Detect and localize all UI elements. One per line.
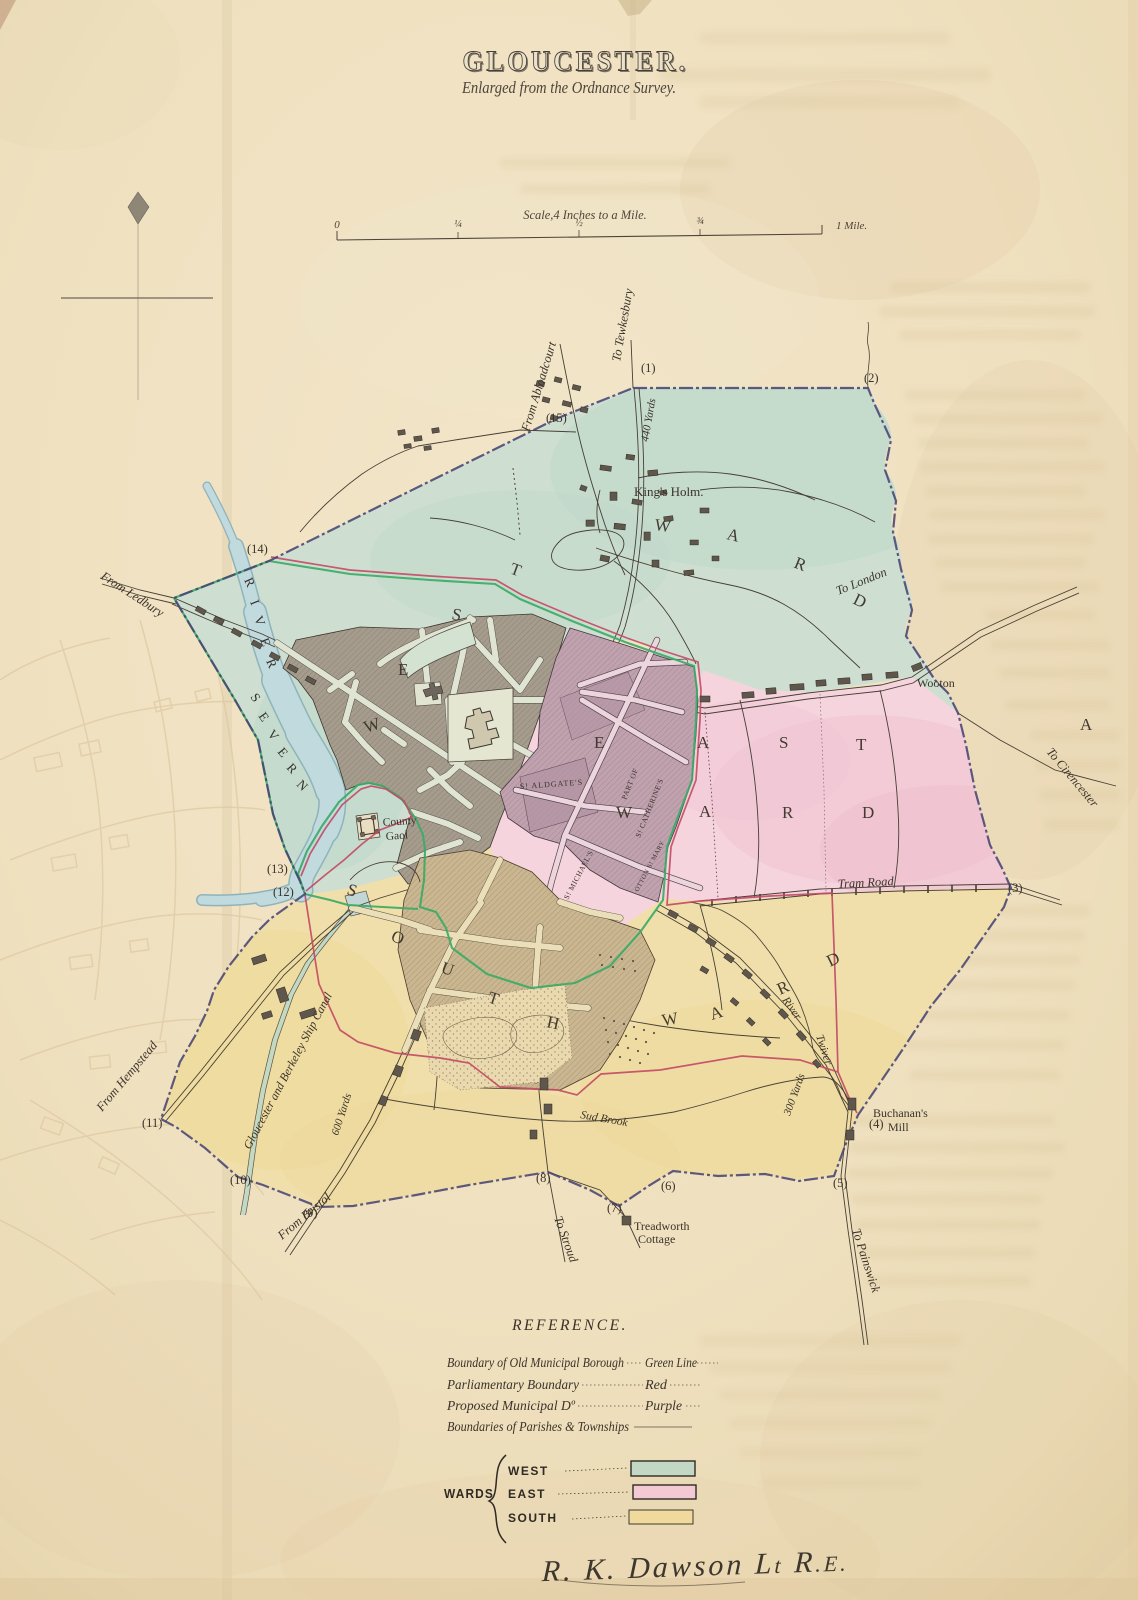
- svg-text:King's Holm.: King's Holm.: [634, 484, 704, 499]
- svg-text:Green Line: Green Line: [645, 1356, 697, 1371]
- svg-text:D: D: [862, 803, 874, 822]
- svg-text:(1): (1): [641, 361, 656, 375]
- svg-text:E: E: [398, 660, 408, 679]
- svg-text:(14): (14): [247, 542, 268, 556]
- svg-text:(7): (7): [607, 1201, 622, 1215]
- svg-text:(2): (2): [864, 371, 879, 385]
- svg-text:Red: Red: [644, 1378, 668, 1393]
- svg-text:E: E: [594, 733, 604, 752]
- svg-text:(8): (8): [536, 1171, 551, 1185]
- svg-text:S: S: [779, 733, 788, 752]
- svg-text:Proposed Municipal Dº: Proposed Municipal Dº: [446, 1399, 576, 1414]
- svg-text:(15): (15): [546, 411, 567, 425]
- svg-text:WEST: WEST: [508, 1464, 549, 1478]
- svg-text:EAST: EAST: [508, 1487, 546, 1501]
- svg-text:(6): (6): [661, 1179, 676, 1193]
- svg-text:Boundaries of Parishes & Towns: Boundaries of Parishes & Townships: [447, 1420, 629, 1435]
- svg-text:Wooton: Wooton: [917, 676, 955, 690]
- svg-text:A: A: [697, 733, 710, 752]
- svg-text:Gaol: Gaol: [385, 829, 408, 843]
- svg-text:(9): (9): [303, 1206, 318, 1220]
- svg-text:(4): (4): [869, 1117, 884, 1131]
- svg-text:W: W: [616, 803, 633, 822]
- svg-text:Parliamentary Boundary: Parliamentary Boundary: [446, 1378, 580, 1393]
- svg-text:0: 0: [334, 219, 340, 231]
- svg-text:A: A: [1080, 715, 1093, 734]
- svg-text:Boundary of Old Municipal Boro: Boundary of Old Municipal Borough: [447, 1356, 624, 1371]
- svg-text:County: County: [382, 815, 417, 829]
- svg-text:Cottage: Cottage: [638, 1232, 675, 1246]
- svg-text:(3): (3): [1008, 881, 1023, 895]
- svg-text:REFERENCE.: REFERENCE.: [511, 1317, 628, 1334]
- svg-text:Treadworth: Treadworth: [634, 1219, 690, 1233]
- svg-text:Tram Road: Tram Road: [837, 874, 894, 891]
- svg-text:(11): (11): [142, 1116, 162, 1130]
- svg-text:(5): (5): [833, 1176, 848, 1190]
- svg-text:Enlarged from the Ordnance Sur: Enlarged from the Ordnance Survey.: [461, 78, 676, 97]
- svg-text:R: R: [782, 803, 794, 822]
- svg-text:SOUTH: SOUTH: [508, 1511, 558, 1525]
- svg-text:¾: ¾: [696, 216, 704, 227]
- svg-text:(10): (10): [230, 1173, 251, 1187]
- svg-text:A: A: [699, 802, 712, 821]
- svg-text:1 Mile.: 1 Mile.: [836, 220, 867, 232]
- svg-text:.: .: [690, 485, 692, 495]
- svg-text:Purple: Purple: [644, 1399, 682, 1414]
- svg-text:(13): (13): [267, 862, 288, 876]
- svg-text:½: ½: [575, 218, 583, 229]
- svg-text:Scale,4 Inches to a Mile.: Scale,4 Inches to a Mile.: [523, 208, 647, 222]
- svg-text:Mill: Mill: [888, 1120, 909, 1134]
- svg-text:¼: ¼: [454, 219, 462, 230]
- svg-text:T: T: [856, 735, 867, 754]
- svg-text:GLOUCESTER.: GLOUCESTER.: [463, 46, 689, 78]
- svg-text:(12): (12): [273, 885, 294, 899]
- svg-text:WARDS: WARDS: [444, 1487, 494, 1501]
